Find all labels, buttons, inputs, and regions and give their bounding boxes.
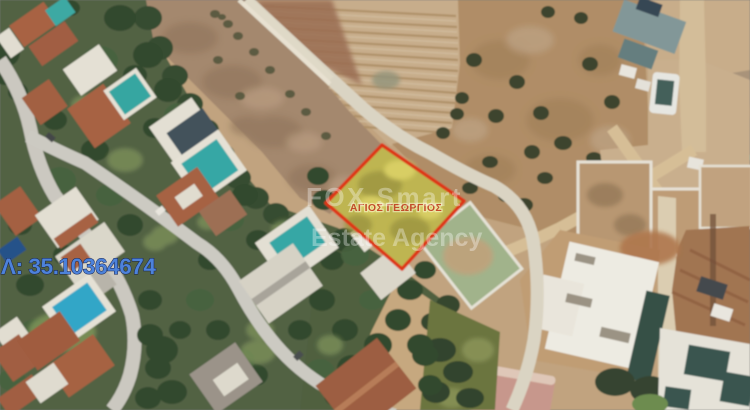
svg-text:Estate Agency: Estate Agency xyxy=(311,224,482,252)
svg-text:Λ: 35.10364674: Λ: 35.10364674 xyxy=(1,254,156,279)
svg-text:FOX Smart: FOX Smart xyxy=(306,182,463,212)
